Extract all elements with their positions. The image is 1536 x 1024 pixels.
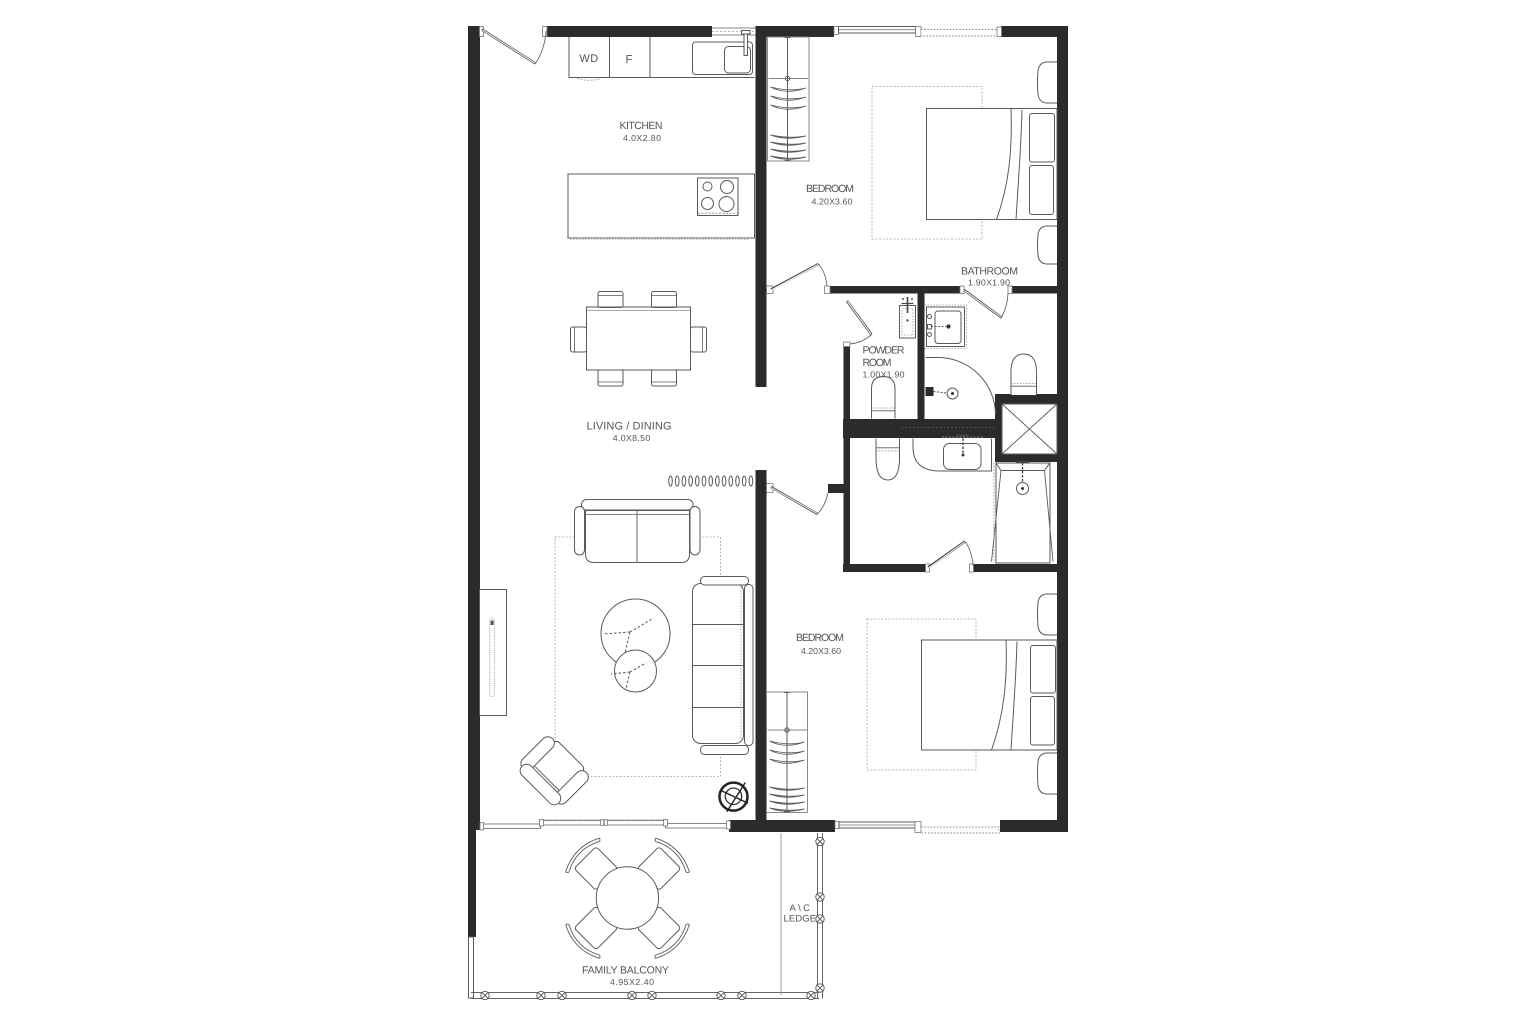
svg-text:ROOM: ROOM <box>863 357 893 369</box>
svg-text:BEDROOM: BEDROOM <box>796 632 845 644</box>
svg-text:POWDER: POWDER <box>863 345 906 357</box>
svg-text:4.95X2.40: 4.95X2.40 <box>610 977 654 987</box>
svg-text:4.0X2.80: 4.0X2.80 <box>623 133 661 143</box>
svg-text:BATHROOM: BATHROOM <box>961 266 1019 278</box>
svg-text:4.0X8.50: 4.0X8.50 <box>613 433 651 443</box>
svg-text:WD: WD <box>579 53 598 65</box>
svg-text:LIVING / DINING: LIVING / DINING <box>587 421 673 433</box>
svg-text:1.90X1.90: 1.90X1.90 <box>968 278 1010 288</box>
svg-text:A\C: A\C <box>790 903 811 914</box>
svg-text:LEDGE: LEDGE <box>784 914 817 925</box>
svg-text:FAMILY BALCONY: FAMILY BALCONY <box>582 965 670 977</box>
svg-text:F: F <box>625 54 632 66</box>
svg-text:4.20X3.60: 4.20X3.60 <box>812 197 853 207</box>
svg-text:KITCHEN: KITCHEN <box>620 120 664 132</box>
svg-text:1.00X1.90: 1.00X1.90 <box>863 370 905 380</box>
svg-text:4.20X3.60: 4.20X3.60 <box>801 646 841 656</box>
svg-text:BEDROOM: BEDROOM <box>806 183 855 195</box>
